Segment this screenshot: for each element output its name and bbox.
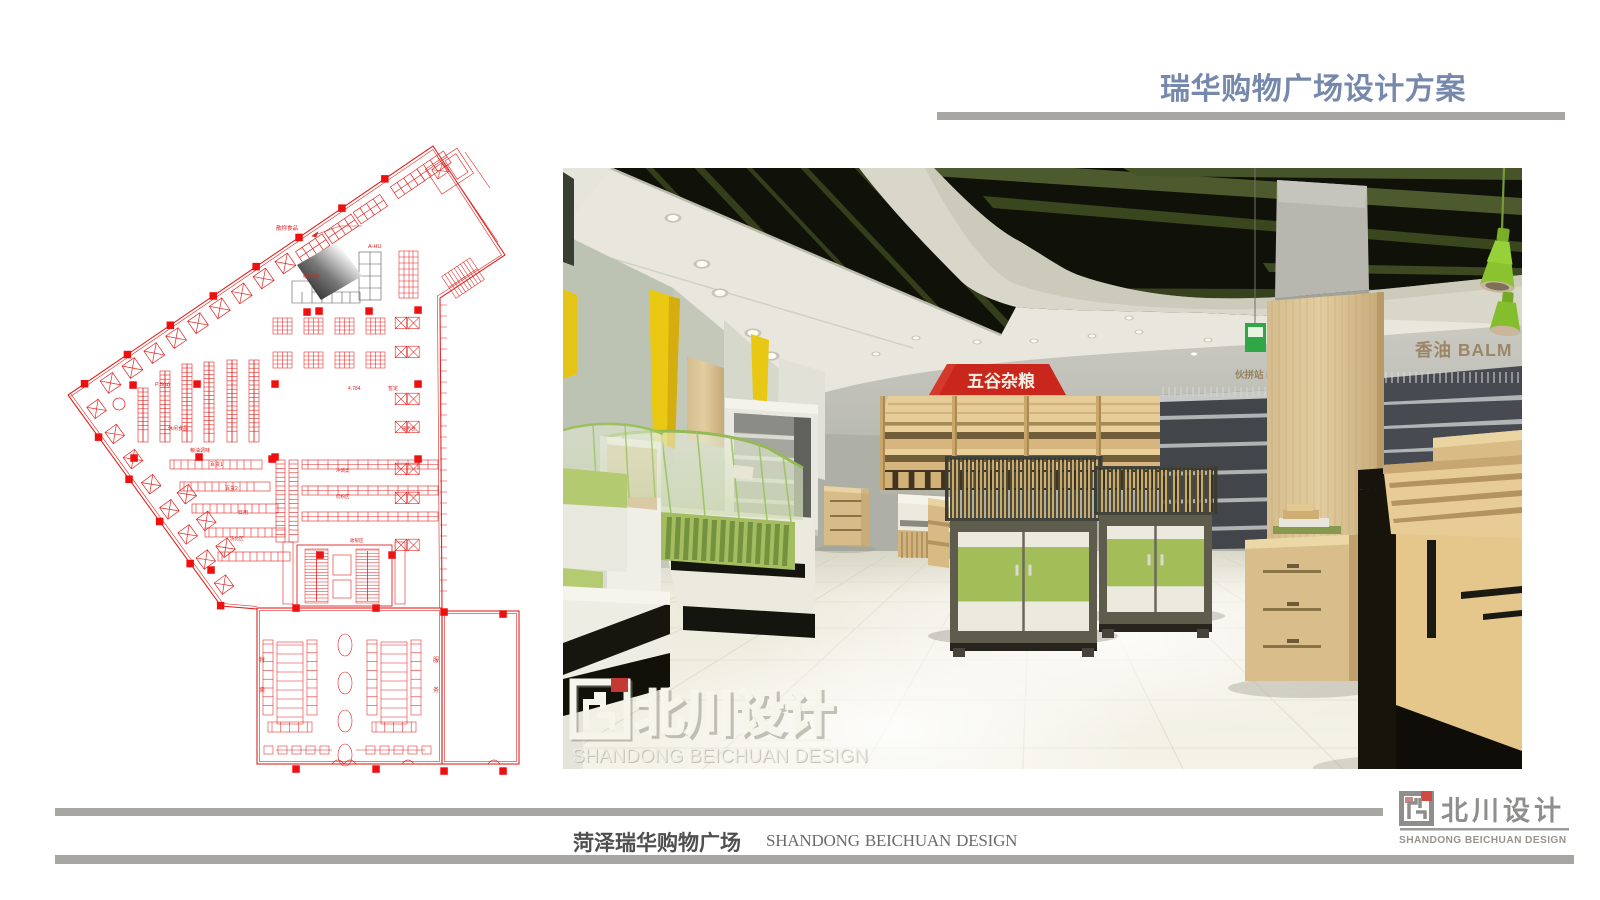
svg-text:北川设计: 北川设计 — [635, 687, 835, 741]
svg-text:P.B(a): P.B(a) — [155, 382, 170, 388]
svg-text:务: 务 — [433, 686, 439, 694]
svg-text:4.784: 4.784 — [348, 386, 361, 392]
svg-text:散称食品: 散称食品 — [276, 224, 299, 232]
svg-text:奶粉区: 奶粉区 — [336, 493, 350, 500]
svg-text:冲调类: 冲调类 — [336, 467, 350, 474]
svg-text:收银区: 收银区 — [350, 537, 364, 544]
svg-text:北川设计: 北川设计 — [1441, 796, 1565, 826]
svg-text:服: 服 — [433, 657, 439, 664]
svg-text:A-HU: A-HU — [368, 244, 381, 250]
svg-text:百货2: 百货2 — [225, 485, 238, 492]
svg-text:日用: 日用 — [238, 510, 248, 516]
svg-text:特: 特 — [259, 656, 265, 664]
svg-text:卖: 卖 — [259, 687, 265, 694]
svg-text:SHANDONG BEICHUAN DESIGN: SHANDONG BEICHUAN DESIGN — [1399, 835, 1567, 846]
svg-text:暂定: 暂定 — [388, 385, 398, 392]
svg-text:SHANDONG BEICHUAN DESIGN: SHANDONG BEICHUAN DESIGN — [572, 746, 868, 767]
svg-text:休闲食品: 休闲食品 — [168, 425, 188, 432]
svg-text:服务台: 服务台 — [402, 425, 416, 432]
svg-text:百货1: 百货1 — [210, 461, 223, 468]
svg-text:收银台: 收银台 — [303, 272, 320, 280]
svg-text:五谷杂粮: 五谷杂粮 — [967, 371, 1035, 391]
svg-text:洗化区: 洗化区 — [230, 535, 244, 542]
svg-text:粮油调味: 粮油调味 — [190, 447, 210, 454]
svg-text:香油 BALM: 香油 BALM — [1415, 340, 1512, 360]
